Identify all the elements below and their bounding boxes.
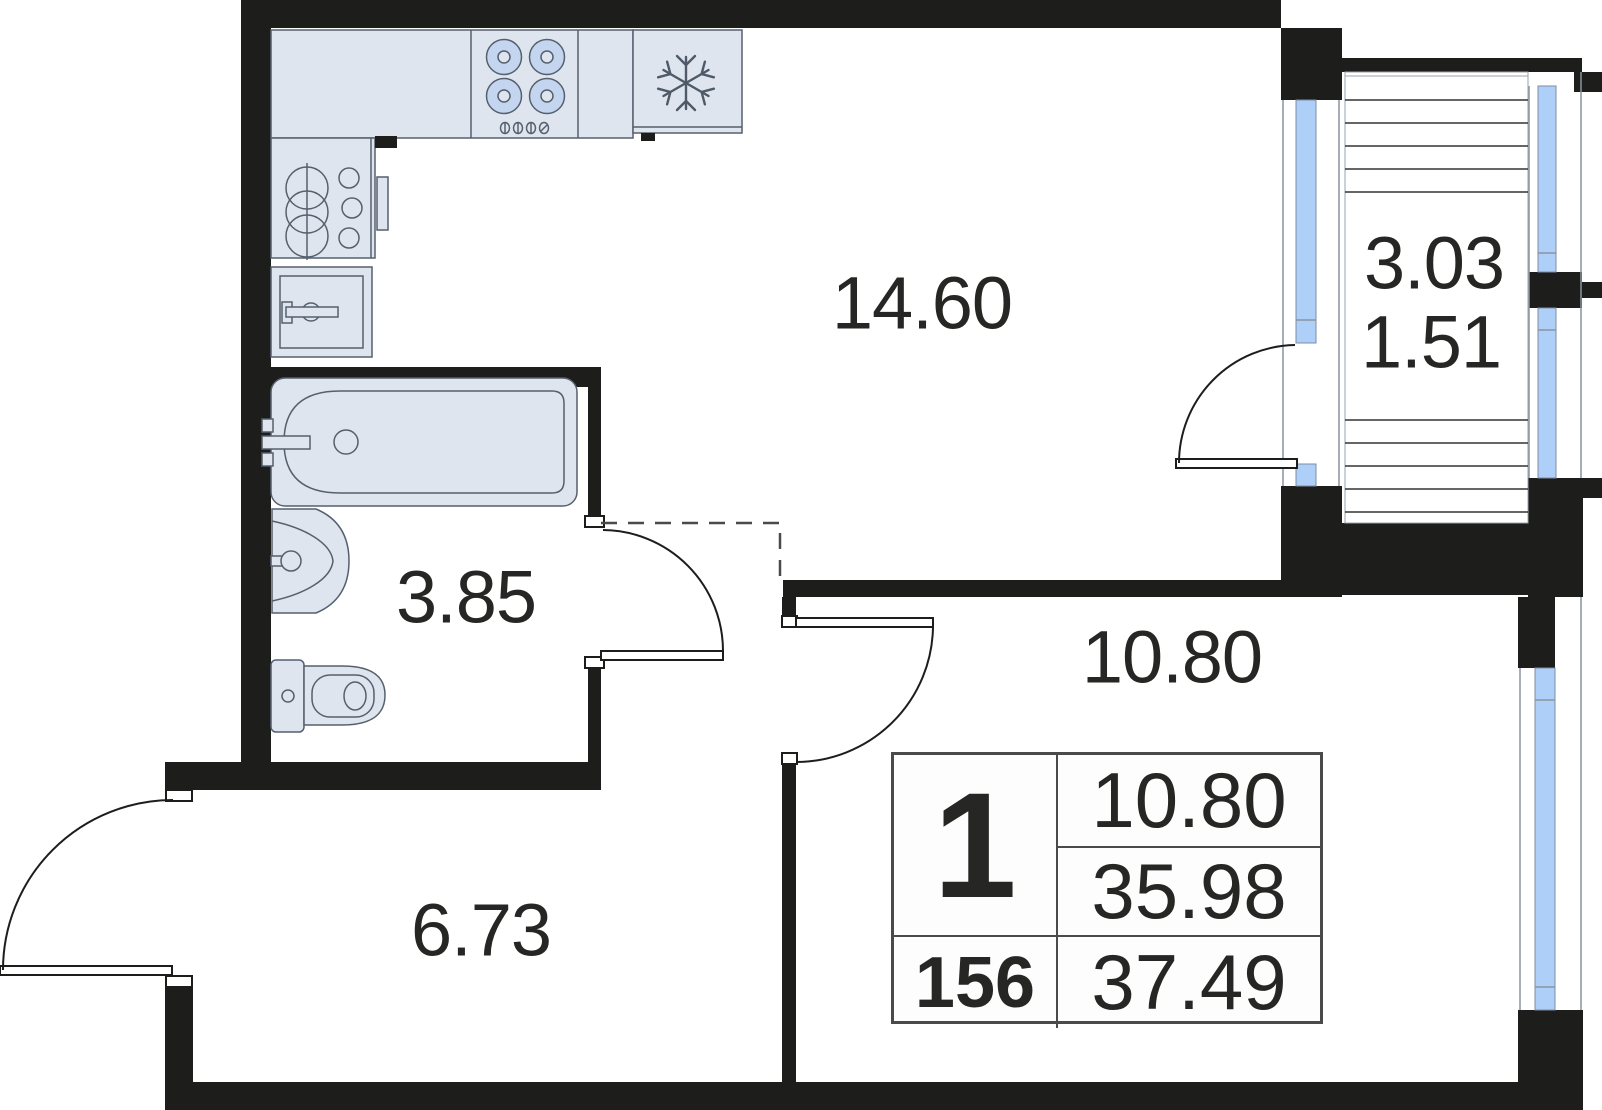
- door-leaf: [1176, 459, 1297, 468]
- balcony-top-right-step: [1574, 72, 1602, 92]
- room-label-bathroom: 3.85: [396, 555, 536, 640]
- bedroom-area-cell: 10.80: [1056, 755, 1320, 846]
- top-wall: [241, 0, 1281, 28]
- window-glass: [1296, 464, 1316, 486]
- washing-machine: [271, 267, 372, 357]
- burner-center: [541, 51, 553, 63]
- window-glass: [1535, 668, 1555, 1010]
- burner-center: [498, 90, 510, 102]
- burner-center: [541, 90, 553, 102]
- bathtub-tap-mount: [262, 419, 273, 432]
- balcony-bottom-wall: [1342, 523, 1528, 595]
- bedroom-right-pier-bottom: [1518, 1010, 1583, 1082]
- balcony-top-wall: [1342, 58, 1582, 72]
- door-swing-arc: [3, 800, 173, 970]
- total-area-cell: 37.49: [1056, 935, 1320, 1028]
- window-glass: [1538, 308, 1556, 478]
- fridge: [633, 30, 742, 141]
- living-room-window: [1283, 100, 1339, 486]
- bedroom-door: [782, 616, 933, 764]
- window-pier-top: [1281, 28, 1342, 100]
- door-swing-arc: [603, 530, 723, 651]
- bedroom-left-wall: [782, 764, 796, 1082]
- door-jamb: [585, 516, 604, 527]
- left-wall-lower: [165, 983, 193, 1082]
- washbasin-faucet: [281, 551, 301, 571]
- washer-handle: [286, 307, 338, 317]
- room-label-bedroom: 10.80: [1082, 615, 1262, 700]
- room-label-balcony-reduced: 1.51: [1361, 300, 1501, 385]
- balcony-door: [1176, 345, 1297, 468]
- floor-plan-drawing: [0, 0, 1602, 1110]
- bathtub-tap-mount: [262, 453, 273, 466]
- room-label-hallway: 6.73: [411, 888, 551, 973]
- apartment-info-table: 1 10.80 35.98 156 37.49: [891, 752, 1323, 1024]
- balcony-corner-fin: [1583, 478, 1602, 498]
- door-leaf: [0, 966, 172, 975]
- door-leaf: [796, 618, 933, 627]
- walls: [165, 0, 1602, 1110]
- window-glass: [1538, 86, 1556, 272]
- washbasin: [271, 509, 349, 613]
- bedroom-right-pier-top: [1518, 597, 1555, 668]
- bathroom-bottom-wall: [165, 762, 601, 790]
- sink-unit: [271, 138, 375, 260]
- toilet-tank: [271, 660, 304, 732]
- door-swing-arc: [796, 627, 933, 762]
- window-glass: [1296, 100, 1316, 343]
- room-label-balcony-full: 3.03: [1364, 221, 1504, 306]
- room-label-living-kitchen: 14.60: [832, 261, 1012, 346]
- burner-center: [498, 51, 510, 63]
- bathtub-faucet: [262, 436, 310, 449]
- unit-number-cell: 156: [894, 935, 1056, 1028]
- bathroom-door: [585, 516, 723, 668]
- balcony-corner-block: [1528, 478, 1583, 597]
- room-count-cell: 1: [894, 755, 1056, 935]
- door-swing-arc: [1179, 345, 1295, 463]
- bathtub: [262, 378, 577, 506]
- corridor-top-wall: [783, 580, 1281, 597]
- floor-plan: 14.60 3.03 1.51 3.85 6.73 10.80 1 10.80 …: [0, 0, 1602, 1110]
- balcony-right-pier: [1528, 272, 1582, 308]
- balcony-right-pier-fin: [1582, 282, 1602, 298]
- bathtub-outer: [271, 378, 577, 506]
- door-jamb: [782, 616, 797, 627]
- kitchen: [271, 30, 742, 357]
- bottom-wall: [165, 1082, 1583, 1110]
- area-without-balcony-cell: 35.98: [1056, 846, 1320, 935]
- door-jamb: [782, 753, 797, 764]
- toilet: [271, 660, 385, 732]
- door-leaf: [601, 651, 723, 660]
- left-wall-upper: [241, 0, 271, 790]
- counter-side-ledge: [377, 177, 388, 230]
- entrance-door: [0, 790, 192, 987]
- fridge-handle: [641, 133, 655, 141]
- bathroom-right-wall-lower: [588, 657, 601, 762]
- counter-corner-post: [375, 136, 397, 148]
- window-pier-bottom: [1281, 486, 1342, 597]
- bathroom-right-wall-upper: [588, 367, 601, 527]
- door-jamb: [166, 976, 192, 987]
